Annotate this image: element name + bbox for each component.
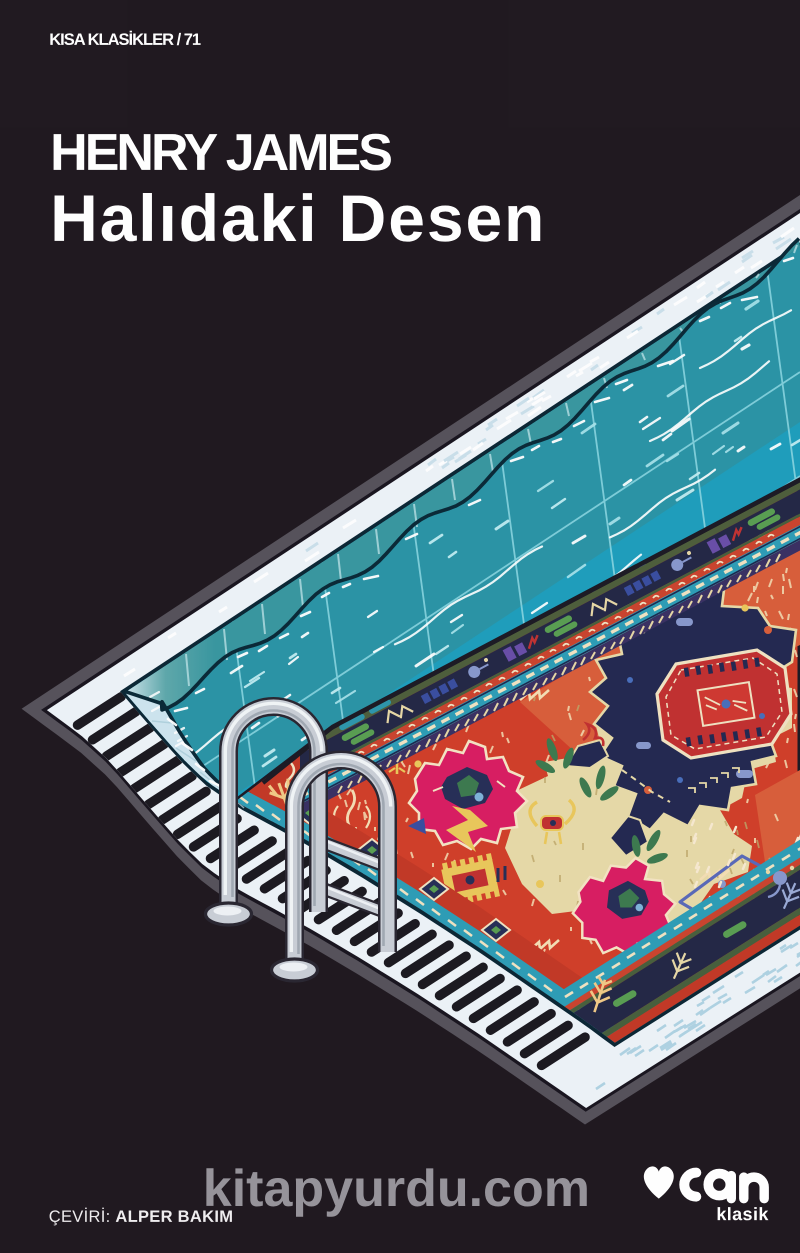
svg-text:KISA KLASİKLER / 71: KISA KLASİKLER / 71 (49, 30, 201, 49)
svg-text:kitapyurdu.com: kitapyurdu.com (203, 1160, 590, 1218)
svg-text:klasik: klasik (716, 1204, 769, 1224)
svg-text:Halıdaki Desen: Halıdaki Desen (50, 181, 546, 255)
svg-text:HENRY JAMES: HENRY JAMES (50, 124, 391, 182)
svg-text:ÇEVİRİ: ALPER BAKIM: ÇEVİRİ: ALPER BAKIM (49, 1207, 233, 1226)
